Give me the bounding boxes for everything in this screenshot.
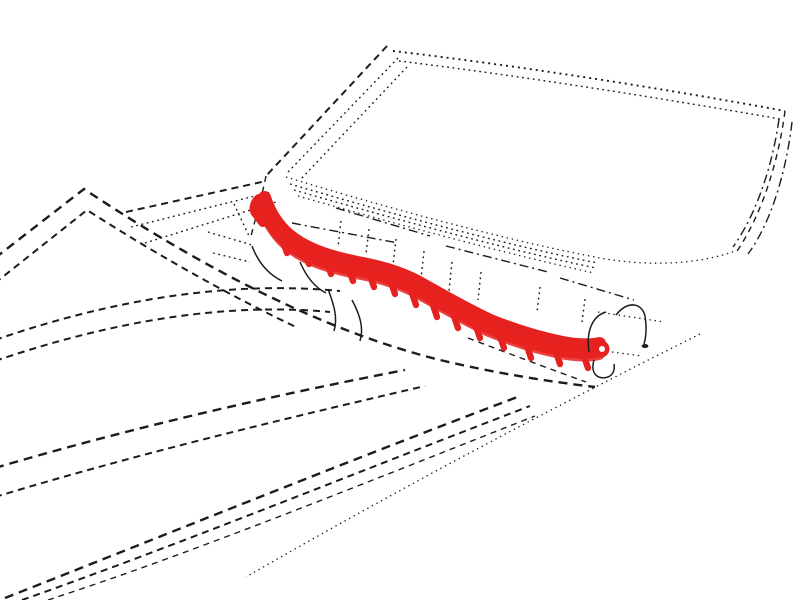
windshield-bottom-outer	[286, 177, 735, 263]
cowl-rail-2	[336, 208, 430, 236]
a-pillar-base-marks	[234, 204, 250, 238]
cowl-post-8	[582, 299, 585, 322]
belt-line-stub	[612, 352, 642, 356]
hook-arc	[616, 305, 646, 344]
a-pillar-outer	[266, 46, 387, 176]
cowl-post-6	[478, 272, 481, 300]
fender-line-2	[0, 309, 330, 361]
trim-end-eyelet	[599, 346, 605, 352]
rocker-line-2	[22, 406, 530, 600]
windshield-top-inner	[399, 61, 780, 119]
rocker-line-1	[5, 396, 520, 598]
windshield-right-mid	[733, 119, 779, 247]
cowl-post-3	[393, 239, 396, 265]
a-pillar-mid	[288, 58, 398, 172]
door-line-2	[0, 386, 425, 497]
hood-corner-mark-2	[213, 253, 250, 262]
windshield-top-outer	[393, 51, 785, 111]
windshield-outline	[286, 51, 792, 273]
cowl-detail-lines	[252, 208, 634, 341]
cowl-post-5	[449, 262, 452, 291]
hook-lower	[593, 360, 614, 378]
highlighted-cowl-trim-strip	[255, 196, 610, 369]
door-line-1	[0, 370, 405, 468]
trim-strip-top-bead	[265, 198, 600, 345]
windshield-right-stray	[748, 122, 792, 254]
figure-container	[0, 0, 800, 600]
cowl-rail-3	[446, 246, 548, 272]
cowl-post-4	[421, 251, 424, 279]
cowl-post-7	[537, 287, 540, 312]
wiper-wisp-3	[252, 246, 282, 281]
a-pillar-inner	[300, 67, 407, 180]
trim-strip-white-gap	[264, 200, 599, 347]
belt-line-dotted	[246, 312, 700, 577]
hood-edge-lines	[0, 181, 595, 387]
belt-line-upper-segment	[598, 312, 664, 322]
hood-corner-mark-1	[208, 232, 252, 245]
hook-foot	[642, 344, 649, 348]
cowl-post-1	[338, 221, 341, 247]
cowl-post-2	[366, 229, 369, 254]
cowl-rail-4	[560, 278, 634, 300]
trim-start-nub	[255, 196, 266, 207]
belt-line	[246, 334, 700, 577]
patent-drawing-canvas	[0, 0, 800, 600]
rocker-line-3	[48, 416, 535, 600]
hood-rear-edge-1	[126, 181, 266, 212]
fender-line-1	[0, 288, 340, 340]
hood-peak-outer	[0, 189, 595, 387]
